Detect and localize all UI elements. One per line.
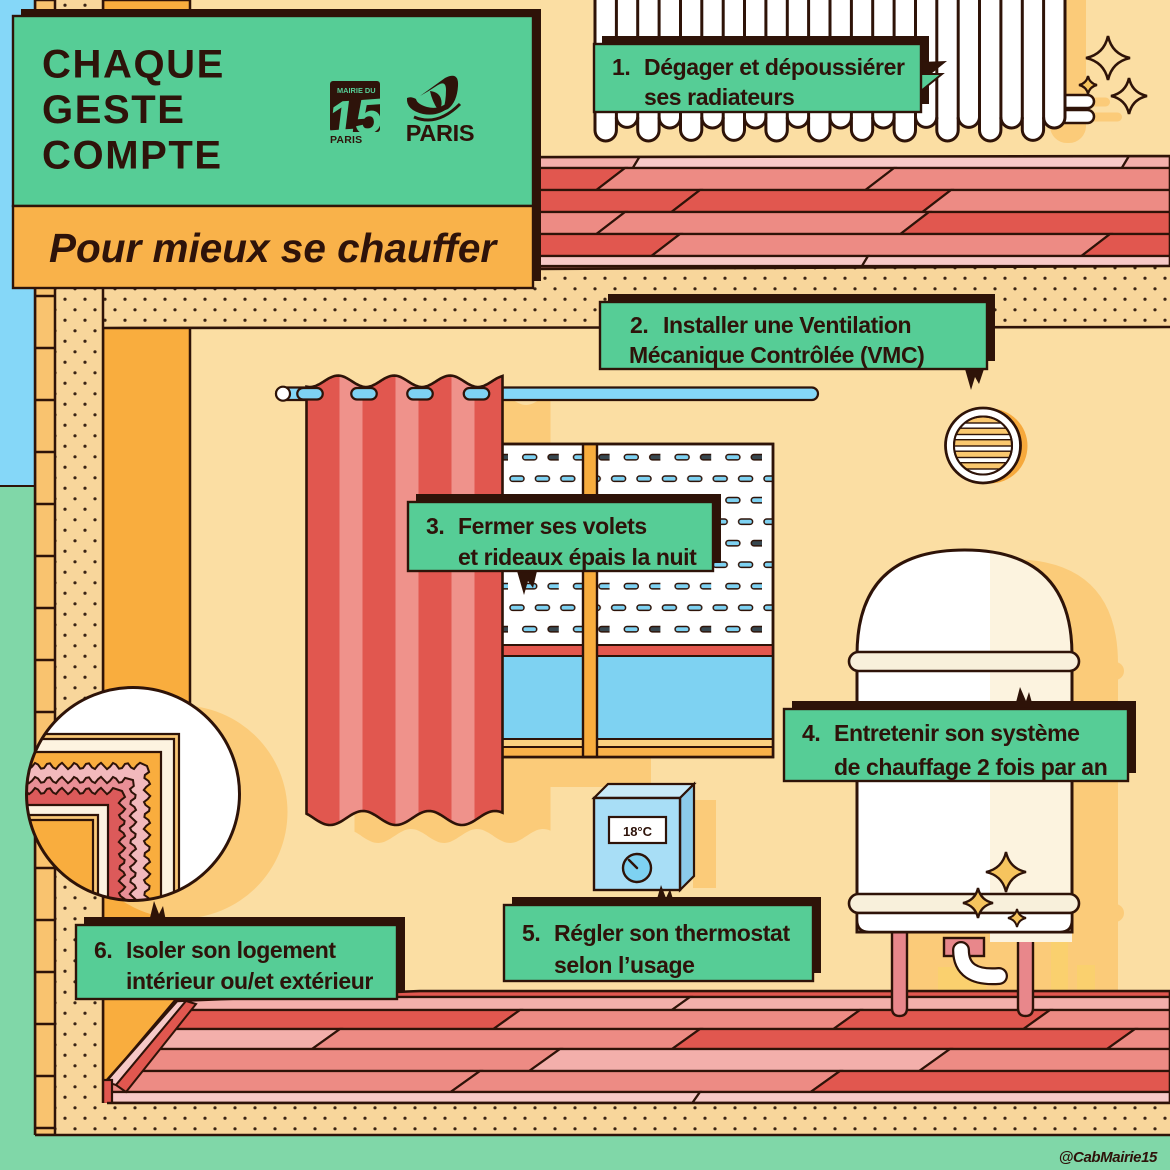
svg-text:6.: 6. bbox=[94, 937, 112, 963]
svg-text:CHAQUE: CHAQUE bbox=[42, 43, 225, 87]
svg-text:5.: 5. bbox=[522, 920, 540, 946]
svg-text:Régler son thermostat: Régler son thermostat bbox=[554, 920, 790, 946]
svg-text:ses radiateurs: ses radiateurs bbox=[644, 84, 794, 110]
svg-text:PARIS: PARIS bbox=[330, 134, 362, 146]
svg-text:1.: 1. bbox=[612, 54, 630, 80]
svg-text:PARIS: PARIS bbox=[406, 120, 475, 146]
svg-text:Dégager et dépoussiérer: Dégager et dépoussiérer bbox=[644, 54, 905, 80]
svg-text:Pour mieux se chauffer: Pour mieux se chauffer bbox=[49, 225, 498, 271]
svg-text:3.: 3. bbox=[426, 513, 444, 539]
svg-text:et rideaux épais la nuit: et rideaux épais la nuit bbox=[458, 544, 697, 570]
svg-text:COMPTE: COMPTE bbox=[42, 134, 223, 178]
svg-text:GESTE: GESTE bbox=[42, 88, 186, 132]
svg-text:de chauffage 2 fois par an: de chauffage 2 fois par an bbox=[834, 754, 1107, 780]
svg-text:Entretenir son système: Entretenir son système bbox=[834, 720, 1080, 746]
svg-text:intérieur ou/et extérieur: intérieur ou/et extérieur bbox=[126, 968, 373, 994]
svg-text:4.: 4. bbox=[802, 720, 820, 746]
svg-text:18°C: 18°C bbox=[623, 824, 653, 839]
svg-text:2.: 2. bbox=[630, 312, 648, 338]
svg-text:Isoler son logement: Isoler son logement bbox=[126, 937, 336, 963]
svg-text:Mécanique Contrôlée (VMC): Mécanique Contrôlée (VMC) bbox=[629, 342, 924, 368]
svg-text:Fermer ses volets: Fermer ses volets bbox=[458, 513, 647, 539]
svg-text:@CabMairie15: @CabMairie15 bbox=[1059, 1149, 1158, 1166]
svg-text:selon l’usage: selon l’usage bbox=[554, 952, 695, 978]
svg-text:Installer une Ventilation: Installer une Ventilation bbox=[663, 312, 911, 338]
